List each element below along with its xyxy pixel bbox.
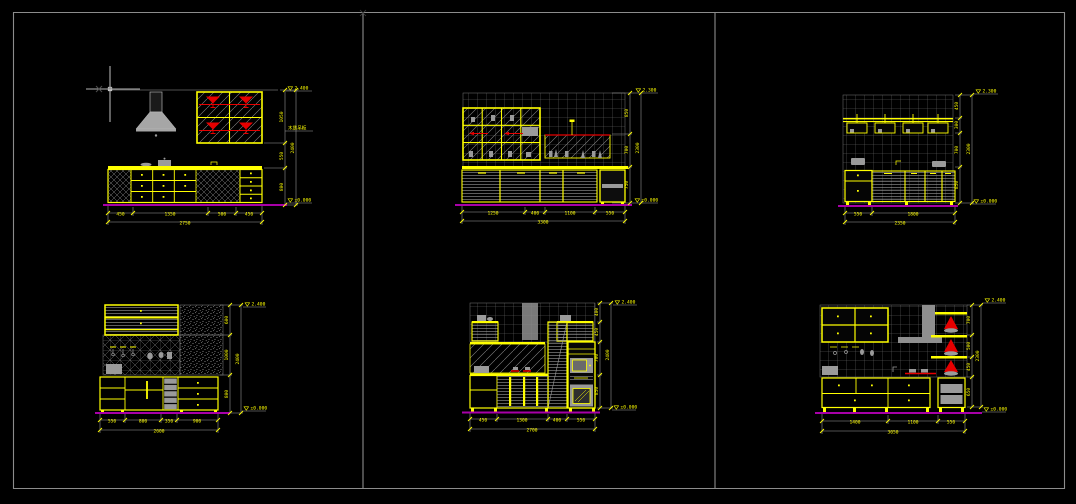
dim-label: 700: [594, 354, 600, 363]
base-cabinets[interactable]: [108, 166, 262, 203]
dim-label: 750: [624, 181, 630, 190]
dim-total-label: 2600: [153, 429, 164, 435]
kitchen-elevation-c[interactable]: 550 1800 2350 450 300 700 850 2300 2.300…: [838, 89, 998, 227]
dim-label: 850: [954, 181, 960, 190]
dim-label: 700: [954, 146, 960, 155]
cad-canvas[interactable]: 450 1350 500 450 2750 1050 550 800 2400 …: [0, 0, 1076, 504]
dim-total-label: 3300: [537, 220, 548, 226]
elevation-label: ±0.000: [642, 198, 659, 204]
elevation-label: 2.300: [983, 89, 997, 95]
dim-label: 600: [224, 316, 230, 325]
dim-label: 500: [966, 342, 972, 351]
elevation-label: ±0.000: [981, 199, 998, 205]
kitchen-elevation-e[interactable]: 450 1300 400 550 2700 400 450 700 850 24…: [462, 300, 637, 434]
countertop-items[interactable]: [141, 158, 218, 167]
dim-label: 450: [479, 418, 488, 424]
dim-label: 500: [218, 212, 227, 218]
stone-hatch-upper: [180, 305, 223, 335]
dim-label: 300: [954, 121, 960, 130]
wall-cabinets[interactable]: [822, 308, 888, 342]
dim-label: 850: [624, 109, 630, 118]
layout-frame: [14, 13, 1065, 489]
elevation-label: ±0.000: [991, 407, 1008, 413]
elevation-label: 2.400: [992, 298, 1006, 304]
dim-label: 1050: [279, 111, 285, 122]
dim-label: 550: [606, 211, 615, 217]
elevation-label: 2.400: [252, 302, 266, 308]
kitchen-elevation-d[interactable]: 550 800 350 900 2600 600 1000 800 2400 2…: [95, 302, 267, 435]
elevation-label: ±0.000: [251, 406, 268, 412]
dim-label: 450: [245, 212, 254, 218]
elevation-marker-icon: [614, 301, 620, 409]
dim-label: 350: [165, 419, 174, 425]
dim-label: 900: [193, 419, 202, 425]
dim-total-label: 3050: [887, 430, 898, 436]
countertop: [462, 166, 628, 169]
slat-wall-cabinet[interactable]: [105, 305, 178, 335]
dim-label: 550: [108, 419, 117, 425]
base-cabinets[interactable]: [462, 166, 628, 205]
dim-label: 1300: [516, 418, 527, 424]
dim-label: 1800: [907, 212, 918, 218]
pot: [822, 366, 838, 375]
drawer-stack: [164, 379, 177, 410]
dim-label: 650: [966, 388, 972, 397]
dim-total-label: 2300: [975, 350, 981, 361]
dim-label: 450: [116, 212, 125, 218]
elevation-marker-icon: [974, 90, 981, 203]
dim-total-label: 2400: [290, 142, 296, 153]
elevation-label: 2.400: [622, 300, 636, 306]
dim-label: 700: [966, 316, 972, 325]
dim-label: 1350: [164, 212, 175, 218]
dim-label: 1400: [849, 420, 860, 426]
dim-label: 450: [954, 102, 960, 111]
elevation-marker-icon: [984, 299, 990, 411]
dim-label: 1100: [907, 420, 918, 426]
dim-total-label: 2300: [966, 143, 972, 154]
dim-label: 800: [224, 390, 230, 399]
pot: [106, 364, 122, 374]
wall-cabinet[interactable]: [197, 92, 262, 143]
dim-label: 450: [594, 328, 600, 337]
dim-label: 550: [279, 152, 285, 161]
dim-total-label: 2750: [179, 221, 190, 227]
dim-total-label: 2400: [235, 353, 241, 364]
dim-total-label: 2400: [605, 349, 611, 360]
dim-label: 1100: [564, 211, 575, 217]
dim-label: 800: [279, 183, 285, 192]
kitchen-elevation-b[interactable]: 1250 400 1100 550 3300 850 700 750 2300 …: [455, 88, 658, 226]
dim-label: 400: [553, 418, 562, 424]
hood-duct: [522, 303, 538, 340]
dim-label: 400: [594, 308, 600, 317]
dim-label: 450: [966, 363, 972, 372]
dim-total-label: 2300: [635, 142, 641, 153]
annotation-label: 木质吊柜: [288, 124, 307, 131]
countertop: [108, 166, 262, 169]
kitchen-elevation-a[interactable]: 450 1350 500 450 2750 1050 550 800 2400 …: [103, 86, 313, 227]
elevation-marker-icon: [244, 303, 250, 410]
elevation-label: ±0.000: [295, 198, 312, 204]
dim-total-label: 2700: [526, 428, 537, 434]
base-cabinets[interactable]: [822, 378, 965, 413]
dim-label: 700: [624, 146, 630, 155]
elevation-label: 2.400: [295, 86, 309, 92]
kitchen-elevation-f[interactable]: 1400 1100 550 3050 700 500 450 650 2300 …: [815, 298, 1007, 436]
dim-total-label: 2350: [894, 221, 905, 227]
dim-label: 550: [854, 212, 863, 218]
base-cabinets[interactable]: [100, 377, 218, 413]
elevation-label: ±0.000: [621, 405, 638, 411]
dim-label: 800: [139, 419, 148, 425]
stone-hatch-lower: [180, 335, 223, 375]
dim-label: 550: [947, 420, 956, 426]
dim-label: 1250: [487, 211, 498, 217]
crosshair-cursor[interactable]: [86, 66, 140, 122]
wall-cabinet[interactable]: [463, 108, 540, 160]
dim-label: 550: [577, 418, 586, 424]
dim-label: 850: [594, 387, 600, 396]
dim-label: 1000: [224, 349, 230, 360]
range-hood[interactable]: [136, 92, 176, 137]
elevation-label: 2.300: [643, 88, 657, 94]
dim-label: 400: [531, 211, 540, 217]
cad-viewport[interactable]: 450 1350 500 450 2750 1050 550 800 2400 …: [0, 0, 1076, 504]
base-cabinets[interactable]: [845, 171, 955, 206]
